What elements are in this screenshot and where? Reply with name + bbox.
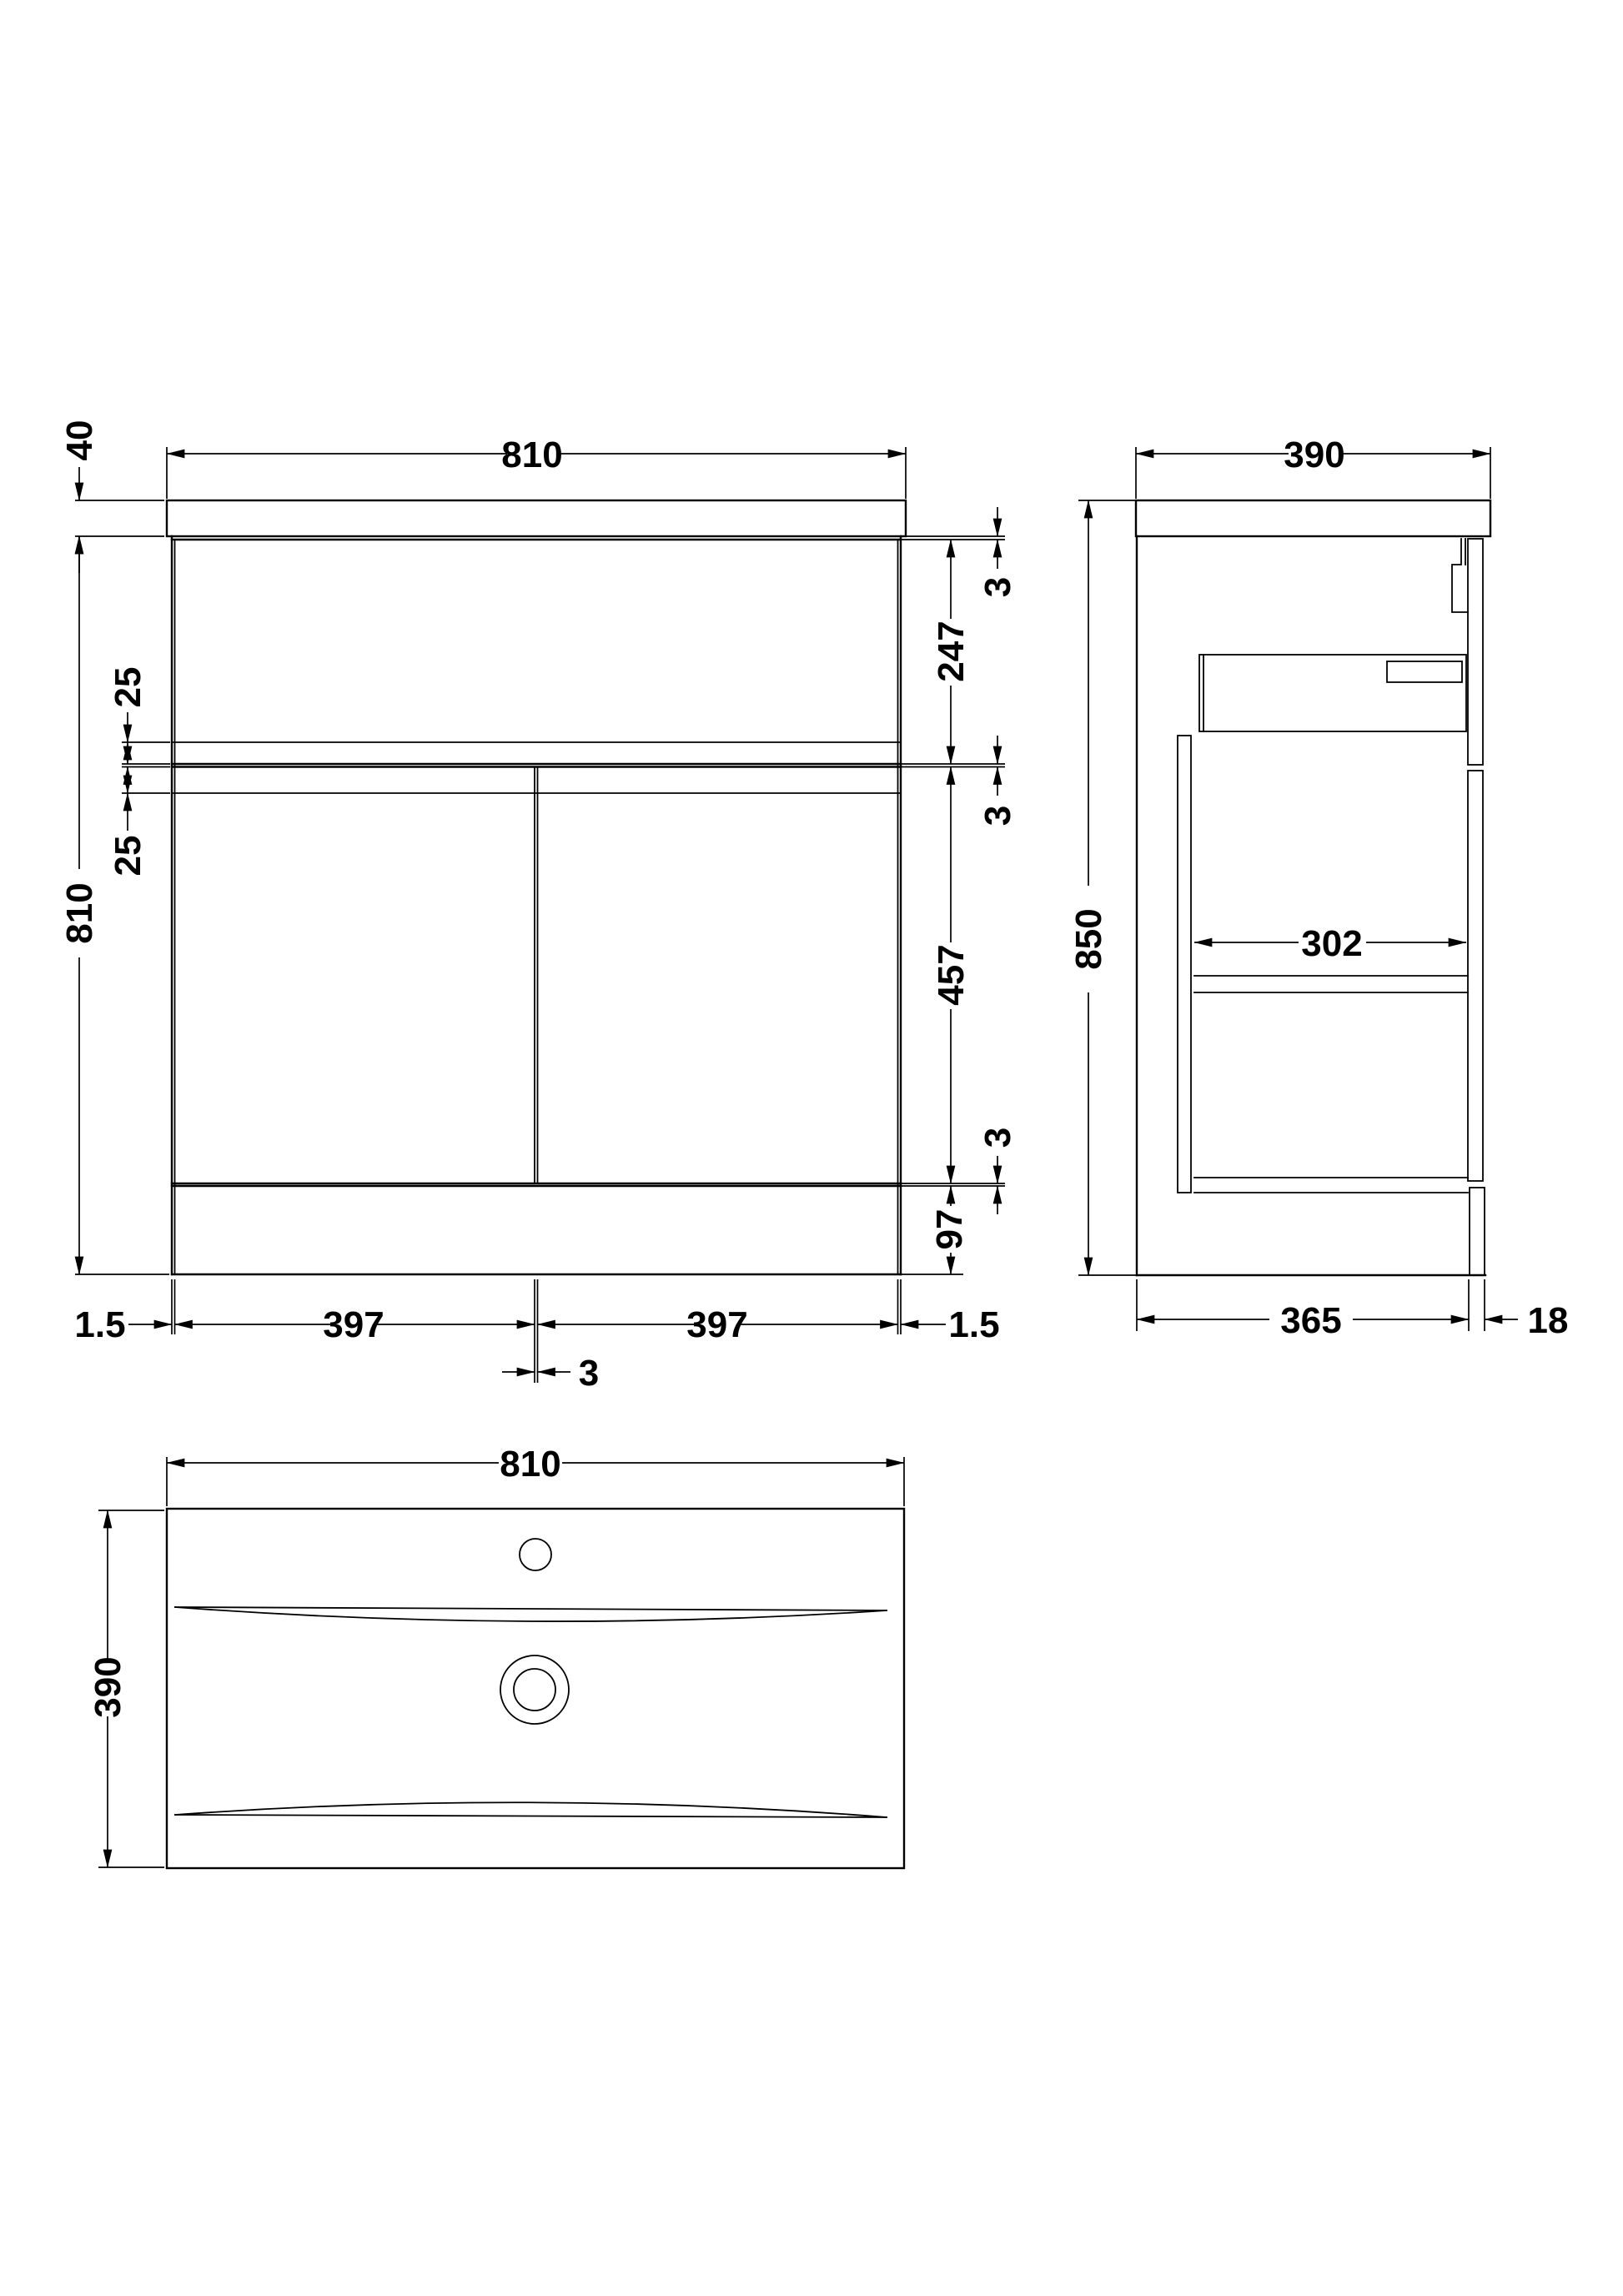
- front-countertop-thickness-label: 40: [59, 420, 100, 461]
- front-overlay-bottom-label: 25: [108, 836, 148, 877]
- front-countertop: [167, 500, 906, 536]
- front-door-height-label: 457: [931, 944, 972, 1005]
- side-shelf: [1194, 976, 1468, 992]
- side-drawer-box-outline: [1199, 655, 1466, 731]
- front-dim-top-width: 810: [167, 435, 906, 499]
- front-top-width-label: 810: [501, 435, 562, 475]
- front-plinth-label: 97: [929, 1209, 970, 1250]
- plan-basin-front-curve: [175, 1607, 887, 1621]
- front-gap-bottom-label: 3: [977, 1128, 1018, 1148]
- front-dim-door-height: 457: [931, 767, 972, 1184]
- front-door-width-right-label: 397: [686, 1304, 747, 1345]
- side-drawer-box: [1199, 655, 1466, 731]
- front-view: 810 40 810 25 25: [59, 420, 1018, 1394]
- front-overlay-top-label: 25: [108, 667, 148, 708]
- plan-basin-outline: [167, 1509, 904, 1868]
- side-depth-label: 390: [1284, 435, 1344, 475]
- front-edge-gap-right-label: 1.5: [948, 1304, 999, 1345]
- front-dim-gap-top: 3: [977, 507, 1018, 597]
- side-countertop: [1136, 500, 1490, 536]
- front-dim-bottom-row: 1.5 397 397 1.5 3: [74, 1279, 999, 1394]
- side-drawer-runner: [1387, 661, 1462, 682]
- side-back-panel-lower: [1470, 1188, 1485, 1275]
- side-hanging-bracket: [1452, 539, 1468, 612]
- front-horizontal-lines: [172, 540, 901, 1186]
- side-dim-depth: 390: [1136, 435, 1490, 499]
- side-back-panel-upper: [1468, 539, 1483, 765]
- side-carcass-depth-label: 365: [1280, 1300, 1341, 1341]
- front-gap-middle-label: 3: [977, 806, 1018, 826]
- side-internal-depth-label: 302: [1301, 923, 1362, 964]
- side-bottom-panel: [1194, 1178, 1468, 1193]
- front-dim-plinth: 97: [929, 1186, 970, 1274]
- drawing-canvas: 810 40 810 25 25: [0, 0, 1623, 2296]
- front-dim-gap-bottom: 3: [977, 1128, 1018, 1214]
- side-dim-bottom-row: 365 18: [1137, 1279, 1568, 1341]
- side-view: 390 850 302 365 18: [1068, 435, 1568, 1341]
- plan-basin-back-curve: [175, 1802, 887, 1817]
- front-door-gap-label: 3: [579, 1353, 599, 1394]
- front-drawer-height-label: 247: [931, 620, 972, 681]
- side-dim-overall-height: 850: [1068, 500, 1137, 1275]
- front-cabinet-outline: [172, 536, 901, 1274]
- side-back-panel-thickness-label: 18: [1528, 1300, 1569, 1341]
- front-edge-gap-left-label: 1.5: [74, 1304, 125, 1345]
- plan-width-label: 810: [500, 1444, 560, 1485]
- front-door-width-left-label: 397: [323, 1304, 384, 1345]
- front-dim-overlays: 25 25: [108, 667, 170, 877]
- plan-dim-depth: 390: [88, 1510, 164, 1867]
- front-dim-gap-middle: 3: [977, 736, 1018, 826]
- front-gap-top-label: 3: [977, 577, 1018, 597]
- plan-view: 810 390: [88, 1444, 904, 1868]
- side-overall-height-label: 850: [1068, 908, 1109, 969]
- front-dim-drawer-height: 247: [931, 540, 972, 764]
- plan-tap-hole: [520, 1539, 551, 1570]
- plan-depth-label: 390: [88, 1656, 128, 1717]
- plan-dim-width: 810: [167, 1444, 904, 1506]
- front-cabinet-height-label: 810: [59, 882, 100, 943]
- front-dim-cabinet-height: 810: [59, 536, 169, 1274]
- side-back-panel: [1468, 539, 1485, 1275]
- side-dim-internal-depth: 302: [1194, 923, 1466, 964]
- technical-drawing: 810 40 810 25 25: [0, 0, 1623, 2296]
- plan-waste-hole: [500, 1655, 569, 1724]
- side-back-panel-middle: [1468, 771, 1483, 1181]
- front-door-middle-gap: [535, 767, 538, 1184]
- side-door-panel: [1178, 736, 1191, 1193]
- front-dim-countertop-thickness: 40: [59, 420, 164, 573]
